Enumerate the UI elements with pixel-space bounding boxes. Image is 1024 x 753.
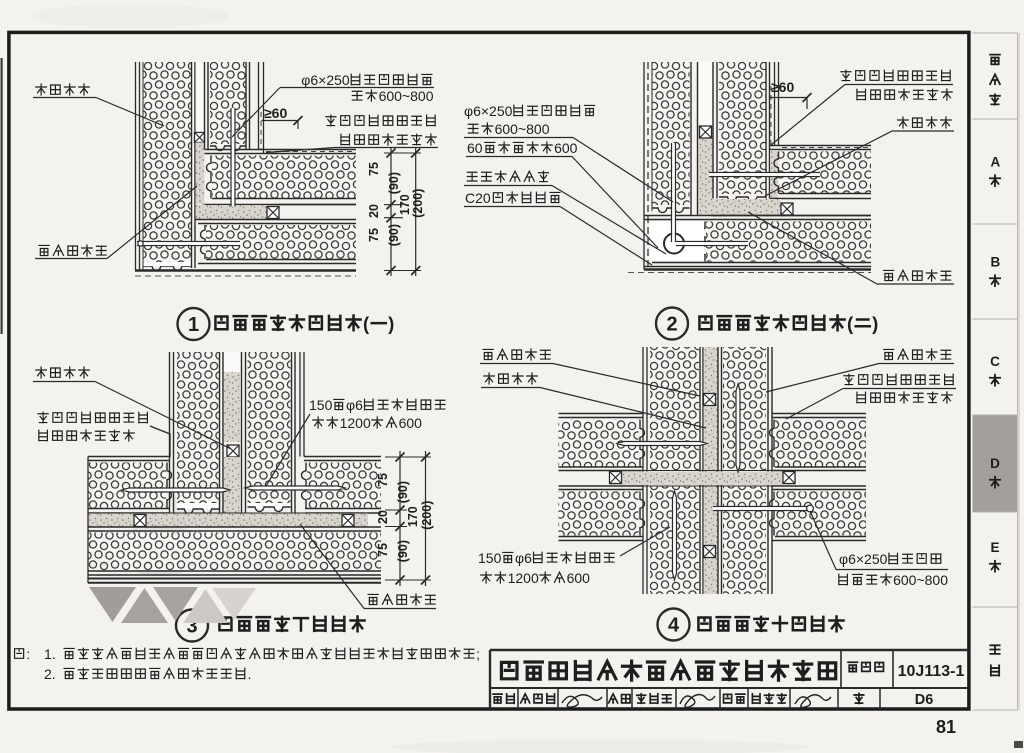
svg-text:75: 75 xyxy=(367,228,381,242)
svg-text:≥60: ≥60 xyxy=(771,79,794,95)
svg-text:1.: 1. xyxy=(44,646,56,662)
svg-text:150: 150 xyxy=(309,397,333,413)
svg-text:C: C xyxy=(990,354,1000,369)
svg-text:;: ; xyxy=(476,646,480,662)
svg-text:≥60: ≥60 xyxy=(264,105,287,121)
svg-text:.: . xyxy=(248,666,252,682)
svg-text:600~800: 600~800 xyxy=(379,88,434,104)
svg-text:D6: D6 xyxy=(915,692,934,708)
svg-text:75: 75 xyxy=(367,162,381,176)
svg-text:B: B xyxy=(991,254,1001,269)
svg-text:1: 1 xyxy=(188,314,199,336)
svg-text:A: A xyxy=(991,154,1001,169)
svg-text:(: ( xyxy=(363,313,370,334)
svg-text:(: ( xyxy=(847,313,854,334)
svg-text:10J113-1: 10J113-1 xyxy=(898,663,965,680)
svg-text::: : xyxy=(26,646,30,662)
svg-text:75: 75 xyxy=(376,473,390,487)
svg-text:600~800: 600~800 xyxy=(495,121,550,137)
svg-text:600: 600 xyxy=(399,415,423,431)
svg-text:81: 81 xyxy=(936,717,956,737)
svg-text:1200: 1200 xyxy=(508,570,539,586)
svg-text:600: 600 xyxy=(554,140,578,156)
svg-text:170: 170 xyxy=(406,506,420,527)
svg-text:75: 75 xyxy=(376,543,390,557)
svg-text:1200: 1200 xyxy=(340,415,371,431)
svg-text:φ6×250: φ6×250 xyxy=(839,551,888,567)
svg-text:4: 4 xyxy=(668,615,680,637)
svg-text:D: D xyxy=(990,456,1000,471)
svg-text:(90): (90) xyxy=(387,224,401,246)
svg-text:E: E xyxy=(991,540,1000,555)
svg-text:φ6: φ6 xyxy=(515,550,532,566)
svg-text:170: 170 xyxy=(398,194,412,215)
svg-text:C20: C20 xyxy=(465,190,491,206)
svg-text:(200): (200) xyxy=(411,189,425,218)
svg-text:): ) xyxy=(872,313,878,334)
svg-text:600~800: 600~800 xyxy=(893,572,948,588)
svg-text:φ6: φ6 xyxy=(346,397,363,413)
svg-text:2.: 2. xyxy=(44,666,56,682)
svg-text:20: 20 xyxy=(376,510,390,524)
svg-text:φ6×250: φ6×250 xyxy=(464,103,513,119)
svg-text:): ) xyxy=(388,313,394,334)
svg-text:150: 150 xyxy=(478,550,502,566)
svg-text:60: 60 xyxy=(467,140,483,156)
svg-text:(90): (90) xyxy=(396,540,410,562)
svg-text:2: 2 xyxy=(666,314,677,336)
svg-text:600: 600 xyxy=(567,570,591,586)
svg-text:φ6×250: φ6×250 xyxy=(301,72,350,88)
svg-text:(90): (90) xyxy=(396,481,410,503)
svg-text:20: 20 xyxy=(367,204,381,218)
svg-text:(90): (90) xyxy=(387,172,401,194)
svg-text:(200): (200) xyxy=(420,501,434,530)
